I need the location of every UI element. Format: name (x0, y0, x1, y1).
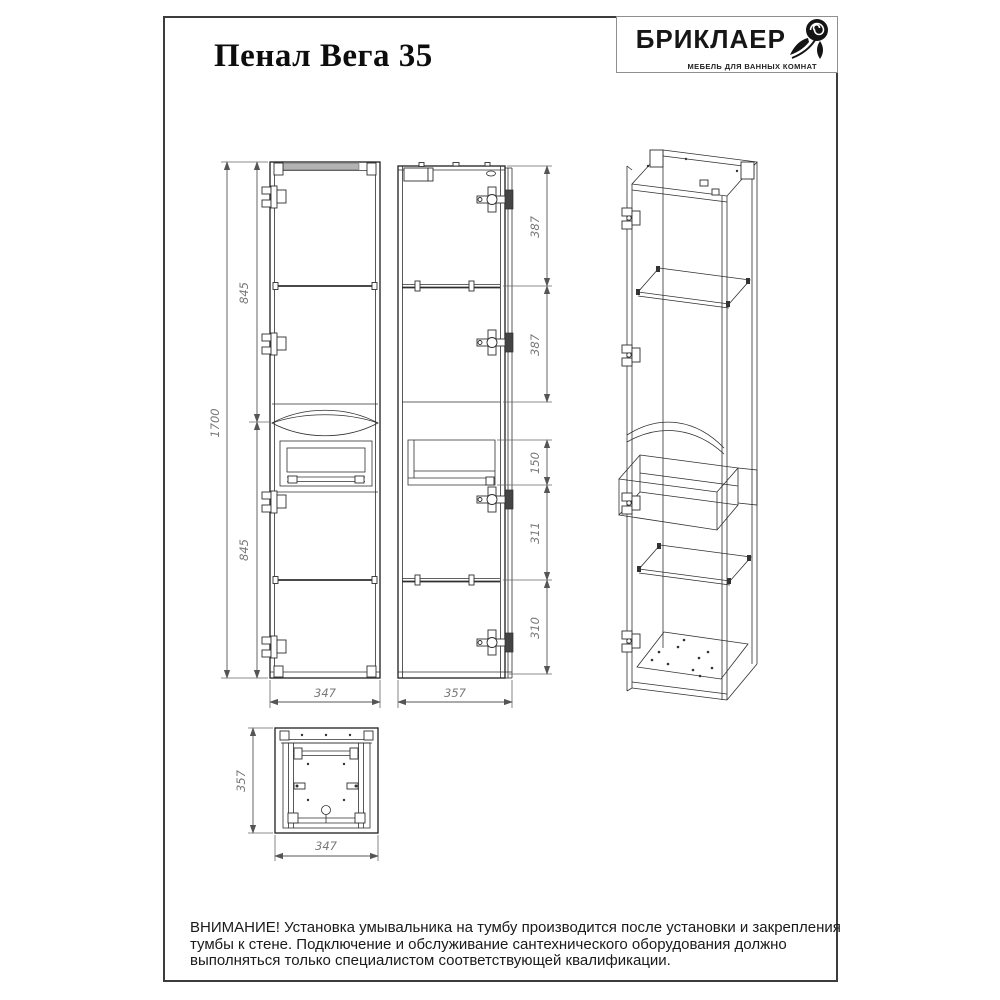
warning-line: ВНИМАНИЕ! Установка умывальника на тумбу… (190, 920, 841, 937)
technical-drawing: 1700 845 845 347 (0, 0, 1000, 1000)
dim-bottom-width: 347 (315, 839, 338, 853)
dim-side-niche-height: 150 (528, 452, 542, 474)
dim-front-width: 347 (314, 686, 337, 700)
dim-bottom-depth: 357 (234, 769, 248, 792)
dim-side-top-section: 387 (528, 215, 542, 238)
side-view: 387 387 150 311 310 357 (398, 163, 552, 709)
bottom-view: 357 347 (234, 728, 378, 861)
dim-side-bottom-section: 310 (528, 617, 542, 639)
dim-side-below-niche: 311 (528, 522, 542, 544)
dim-front-upper-height: 845 (237, 282, 251, 304)
front-view: 1700 845 845 347 (208, 162, 380, 708)
warning-line: тумбы к стене. Подключение и обслуживани… (190, 937, 841, 954)
warning-line: выполняться только специалистом соответс… (190, 953, 841, 970)
dim-front-lower-height: 845 (237, 539, 251, 561)
dim-side-second-section: 387 (528, 333, 542, 356)
dim-front-total-height: 1700 (208, 408, 222, 437)
iso-view (619, 150, 757, 700)
warning-text: ВНИМАНИЕ! Установка умывальника на тумбу… (190, 920, 841, 970)
drawing-sheet: Пенал Вега 35 БРИКЛАЕР МЕБЕЛЬ ДЛЯ ВАННЫХ… (0, 0, 1000, 1000)
hinge-icon (622, 208, 640, 652)
dim-side-depth: 357 (444, 686, 467, 700)
